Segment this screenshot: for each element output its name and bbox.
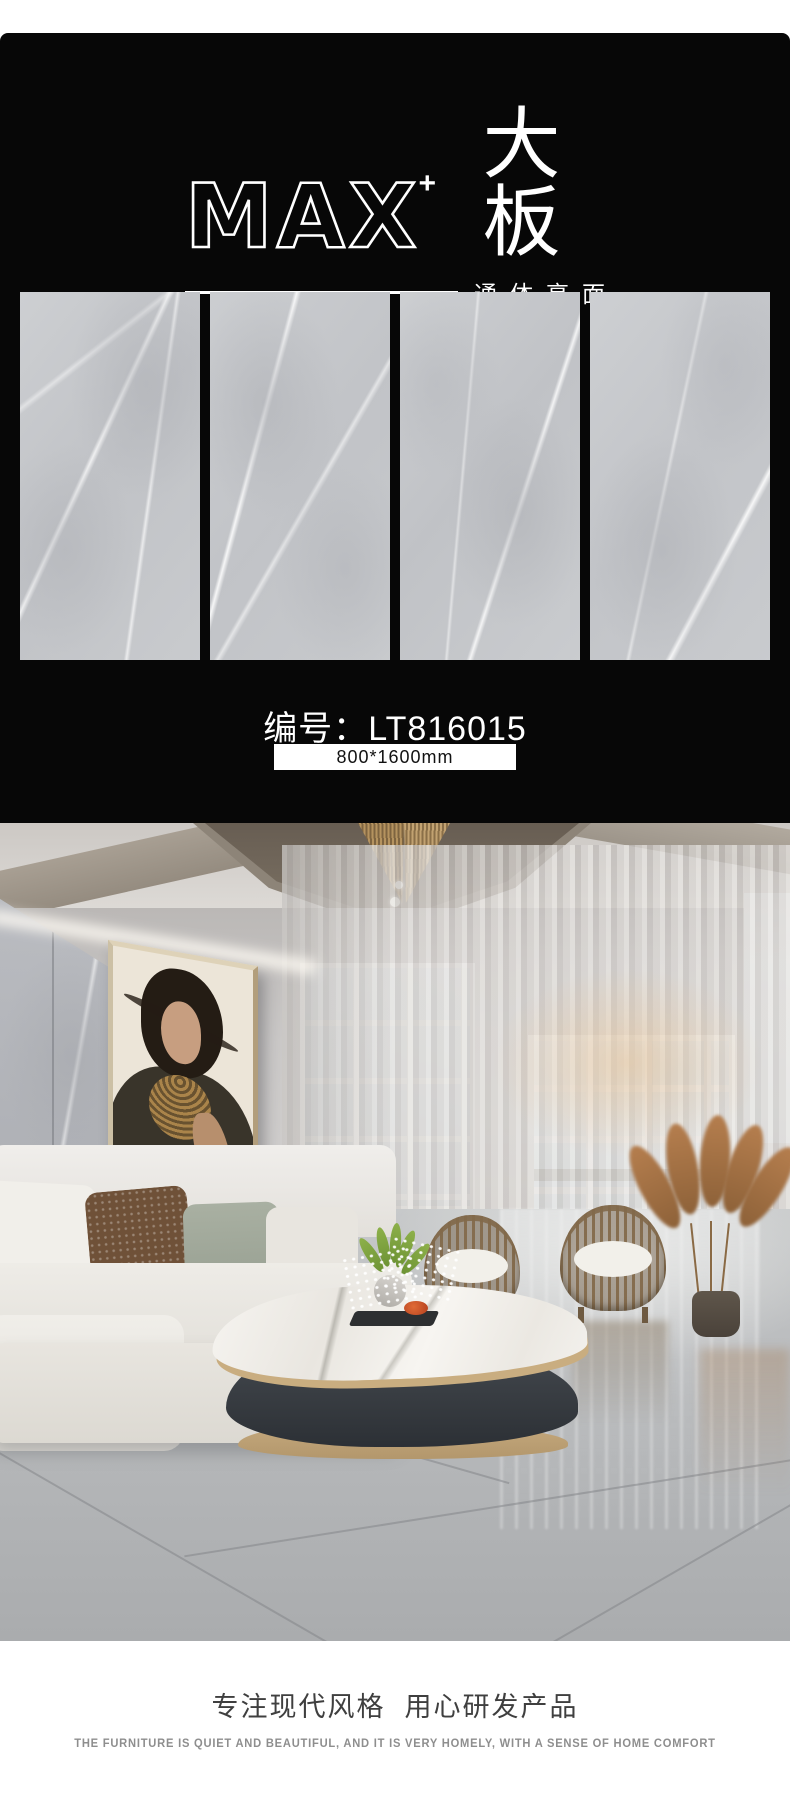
- brand-logo-max: MAX: [185, 173, 421, 261]
- product-size-box: 800*1600mm: [274, 744, 516, 770]
- pampas-vase: [692, 1291, 740, 1337]
- product-code-label: 编号：: [263, 710, 368, 748]
- chair-cushion: [574, 1241, 652, 1277]
- pampas-stem: [710, 1221, 712, 1297]
- floor-joint-line: [0, 1434, 332, 1641]
- footer-slogan-english: THE FURNITURE IS QUIET AND BEAUTIFUL, AN…: [12, 1738, 778, 1750]
- tile-panel-1: [20, 292, 200, 660]
- tile-promo-page: MAX + 大板 通体亮面 编号：LT816015 800*1600mm: [0, 0, 790, 1804]
- tile-panel-2: [210, 292, 390, 660]
- product-code-value: LT816015: [368, 710, 527, 748]
- top-white-strip: [0, 0, 790, 33]
- tile-swatch-display: [20, 292, 770, 660]
- brand-logo-chinese: 大板: [444, 105, 605, 261]
- brand-logo-plus: +: [419, 169, 437, 199]
- tile-panel-4: [590, 292, 770, 660]
- living-room-photo: [0, 823, 790, 1641]
- pampas-reflection: [700, 1349, 790, 1519]
- hero-panel: MAX + 大板 通体亮面 编号：LT816015 800*1600mm: [0, 33, 790, 823]
- brand-logo-row: MAX + 大板: [185, 105, 605, 261]
- product-code-row: 编号：LT816015: [0, 701, 790, 750]
- footer: 专注现代风格 用心研发产品 THE FURNITURE IS QUIET AND…: [0, 1641, 790, 1804]
- table-tray: [349, 1311, 440, 1326]
- tile-panel-3: [400, 292, 580, 660]
- wicker-chair-right: [560, 1205, 666, 1311]
- orange-bowl: [404, 1301, 428, 1315]
- footer-slogan-chinese: 专注现代风格 用心研发产品: [0, 1641, 790, 1724]
- brand-logo-block: MAX + 大板 通体亮面: [185, 105, 605, 309]
- chair-leg: [642, 1307, 648, 1323]
- product-size-value: 800*1600mm: [336, 747, 453, 768]
